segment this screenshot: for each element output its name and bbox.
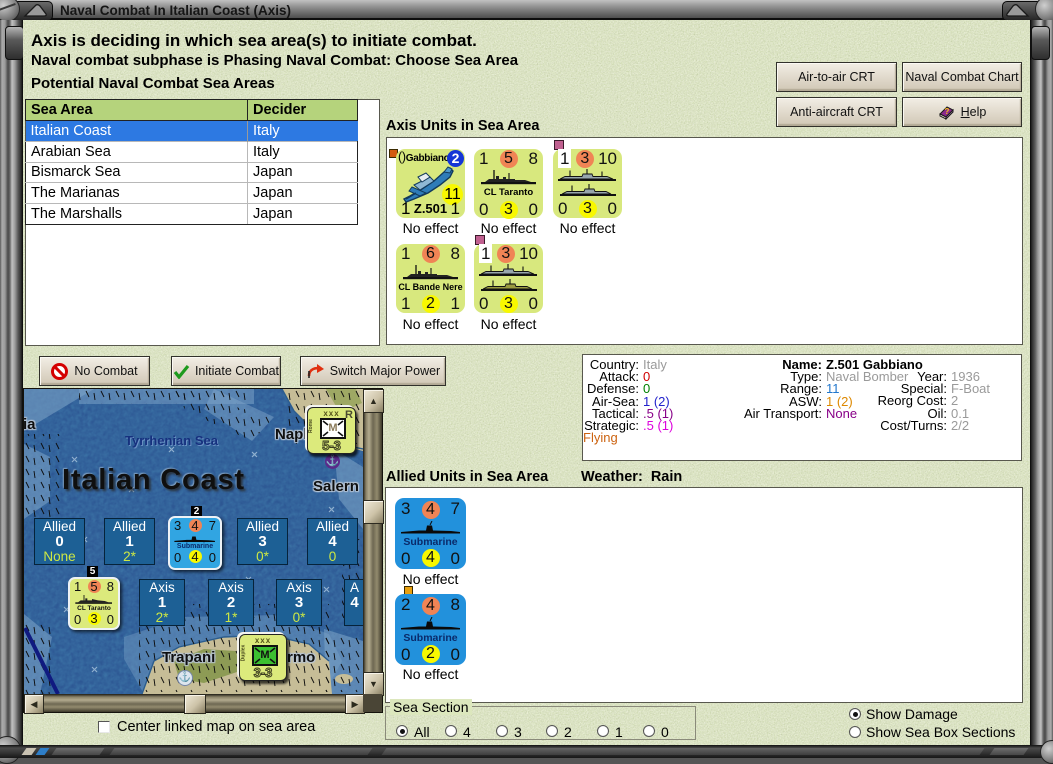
svg-text:?: ?	[944, 107, 949, 116]
